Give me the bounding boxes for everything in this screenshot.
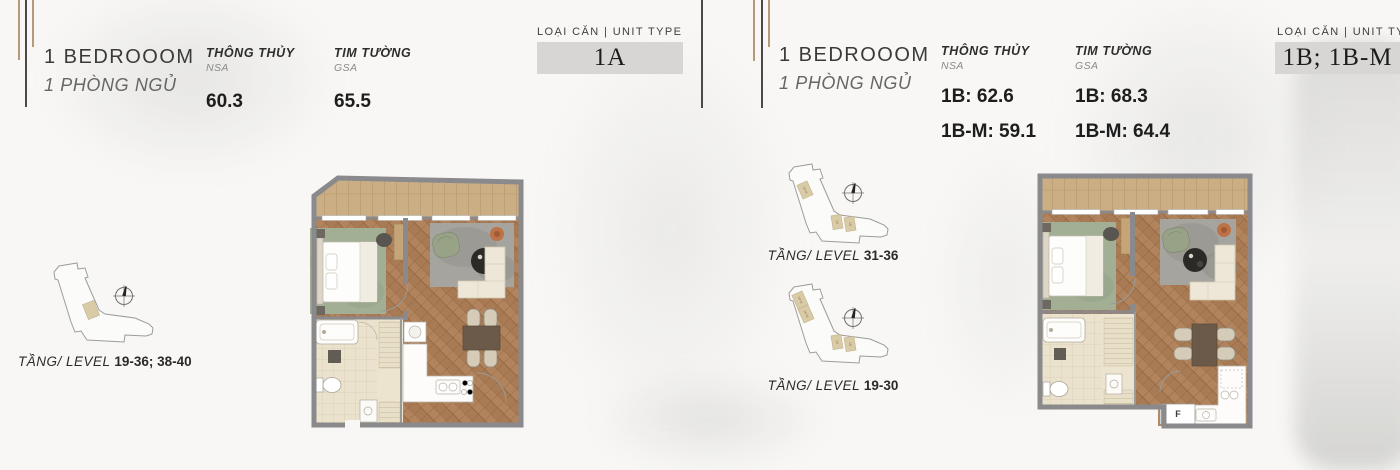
level-value: 19-30 [864, 378, 899, 393]
desk-chair [376, 233, 392, 247]
level-caption-1a: TẦNG/ LEVEL 19-36; 38-40 [18, 354, 178, 369]
section-title-1b: 1 BEDROOOM [779, 44, 930, 67]
unit-mark-label: 1B [848, 342, 853, 346]
accent-line [753, 0, 755, 61]
section-title-1a: 1 BEDROOOM [44, 46, 195, 69]
accent-line [25, 0, 27, 107]
unit-type-value-1a: 1A [594, 44, 627, 72]
unit-highlight: 1B [844, 216, 856, 231]
level-caption-1b-lower: TẦNG/ LEVEL 19-30 [753, 378, 913, 393]
nsa-sublabel: NSA [206, 62, 326, 74]
windows [322, 216, 516, 221]
unit-highlight: 1B [831, 214, 843, 229]
gsa-value-1bm: 1B-M: 64.4 [1075, 121, 1205, 143]
side-table [490, 227, 504, 241]
interior-wall [1130, 212, 1135, 276]
gsa-value: 65.5 [334, 91, 454, 113]
nsa-label: THÔNG THỦY [206, 46, 326, 60]
building-outline [54, 263, 153, 342]
nsa-sublabel: NSA [941, 60, 1071, 72]
desk-chair [1103, 227, 1119, 241]
unit-type-label-1b: LOẠI CĂN | UNIT TYPE [1277, 26, 1400, 38]
nsa-label: THÔNG THỦY [941, 44, 1071, 58]
unit-highlight: 1B [831, 334, 843, 349]
nsa-value: 60.3 [206, 91, 326, 113]
coffee-table [1183, 248, 1207, 272]
brochure-page: 1 BEDROOOM 1 PHÒNG NGỦ THÔNG THỦY NSA 60… [0, 0, 1400, 463]
watercolor-texture [1295, 40, 1400, 470]
section-subtitle-1a: 1 PHÒNG NGỦ [44, 75, 177, 96]
door-opening [345, 420, 360, 428]
unit-type-value-1b: 1B; 1B-M [1282, 44, 1392, 72]
gsa-column-1a: TIM TƯỜNG GSA 65.5 [334, 46, 454, 113]
key-plan-1a [25, 260, 175, 365]
building-outline [789, 164, 888, 243]
unit-mark-label: 1B [835, 340, 840, 344]
gsa-label: TIM TƯỜNG [1075, 44, 1205, 58]
accent-line [32, 0, 34, 47]
bed [317, 238, 377, 304]
unit-type-box-1b: 1B; 1B-M [1275, 42, 1400, 74]
floor-plan-unit-1a [300, 172, 535, 437]
level-caption-1b-upper: TẦNG/ LEVEL 31-36 [753, 248, 913, 263]
unit-type-box-1a: 1A [537, 42, 683, 74]
bed [1043, 232, 1103, 298]
gsa-sublabel: GSA [334, 62, 454, 74]
level-value: 31-36 [864, 248, 899, 263]
unit-type-label-1a: LOẠI CĂN | UNIT TYPE [537, 26, 682, 38]
balcony [314, 178, 521, 218]
wardrobe [379, 322, 400, 368]
gsa-label: TIM TƯỜNG [334, 46, 454, 60]
level-label: TẦNG/ LEVEL [768, 248, 861, 263]
floor-plan-unit-1b: F [1028, 168, 1266, 448]
level-label: TẦNG/ LEVEL [18, 354, 111, 369]
nsa-column-1a: THÔNG THỦY NSA 60.3 [206, 46, 326, 113]
nsa-value-1bm: 1B-M: 59.1 [941, 121, 1071, 143]
fridge-label: F [1175, 409, 1181, 419]
section-subtitle-1b: 1 PHÒNG NGỦ [779, 73, 912, 94]
wardrobe [379, 402, 400, 423]
level-label: TẦNG/ LEVEL [768, 378, 861, 393]
gsa-sublabel: GSA [1075, 60, 1205, 72]
accent-line [761, 0, 763, 108]
accent-line [18, 0, 20, 60]
nsa-column-1b: THÔNG THỦY NSA 1B: 62.6 1B-M: 59.1 [941, 44, 1071, 143]
wardrobe [1104, 318, 1133, 366]
interior-wall [403, 311, 408, 320]
compass-icon [842, 307, 864, 329]
level-value: 19-36; 38-40 [114, 354, 191, 369]
unit-mark-label: 1B [848, 222, 853, 226]
unit-highlight: 1B [844, 336, 856, 351]
nsa-value-1b: 1B: 62.6 [941, 86, 1071, 108]
accent-line [701, 0, 703, 108]
interior-wall [403, 218, 408, 284]
compass-icon [113, 285, 135, 307]
gsa-value-1b: 1B: 68.3 [1075, 86, 1205, 108]
compass-icon [842, 182, 864, 204]
accent-line [768, 0, 770, 47]
balcony [1040, 176, 1250, 212]
side-table [1217, 223, 1231, 237]
gsa-column-1b: TIM TƯỜNG GSA 1B: 68.3 1B-M: 64.4 [1075, 44, 1205, 143]
unit-mark-label: 1B [835, 220, 840, 224]
key-plan-1b-lower: 1B-M 1B-M 1B 1B [760, 281, 910, 386]
